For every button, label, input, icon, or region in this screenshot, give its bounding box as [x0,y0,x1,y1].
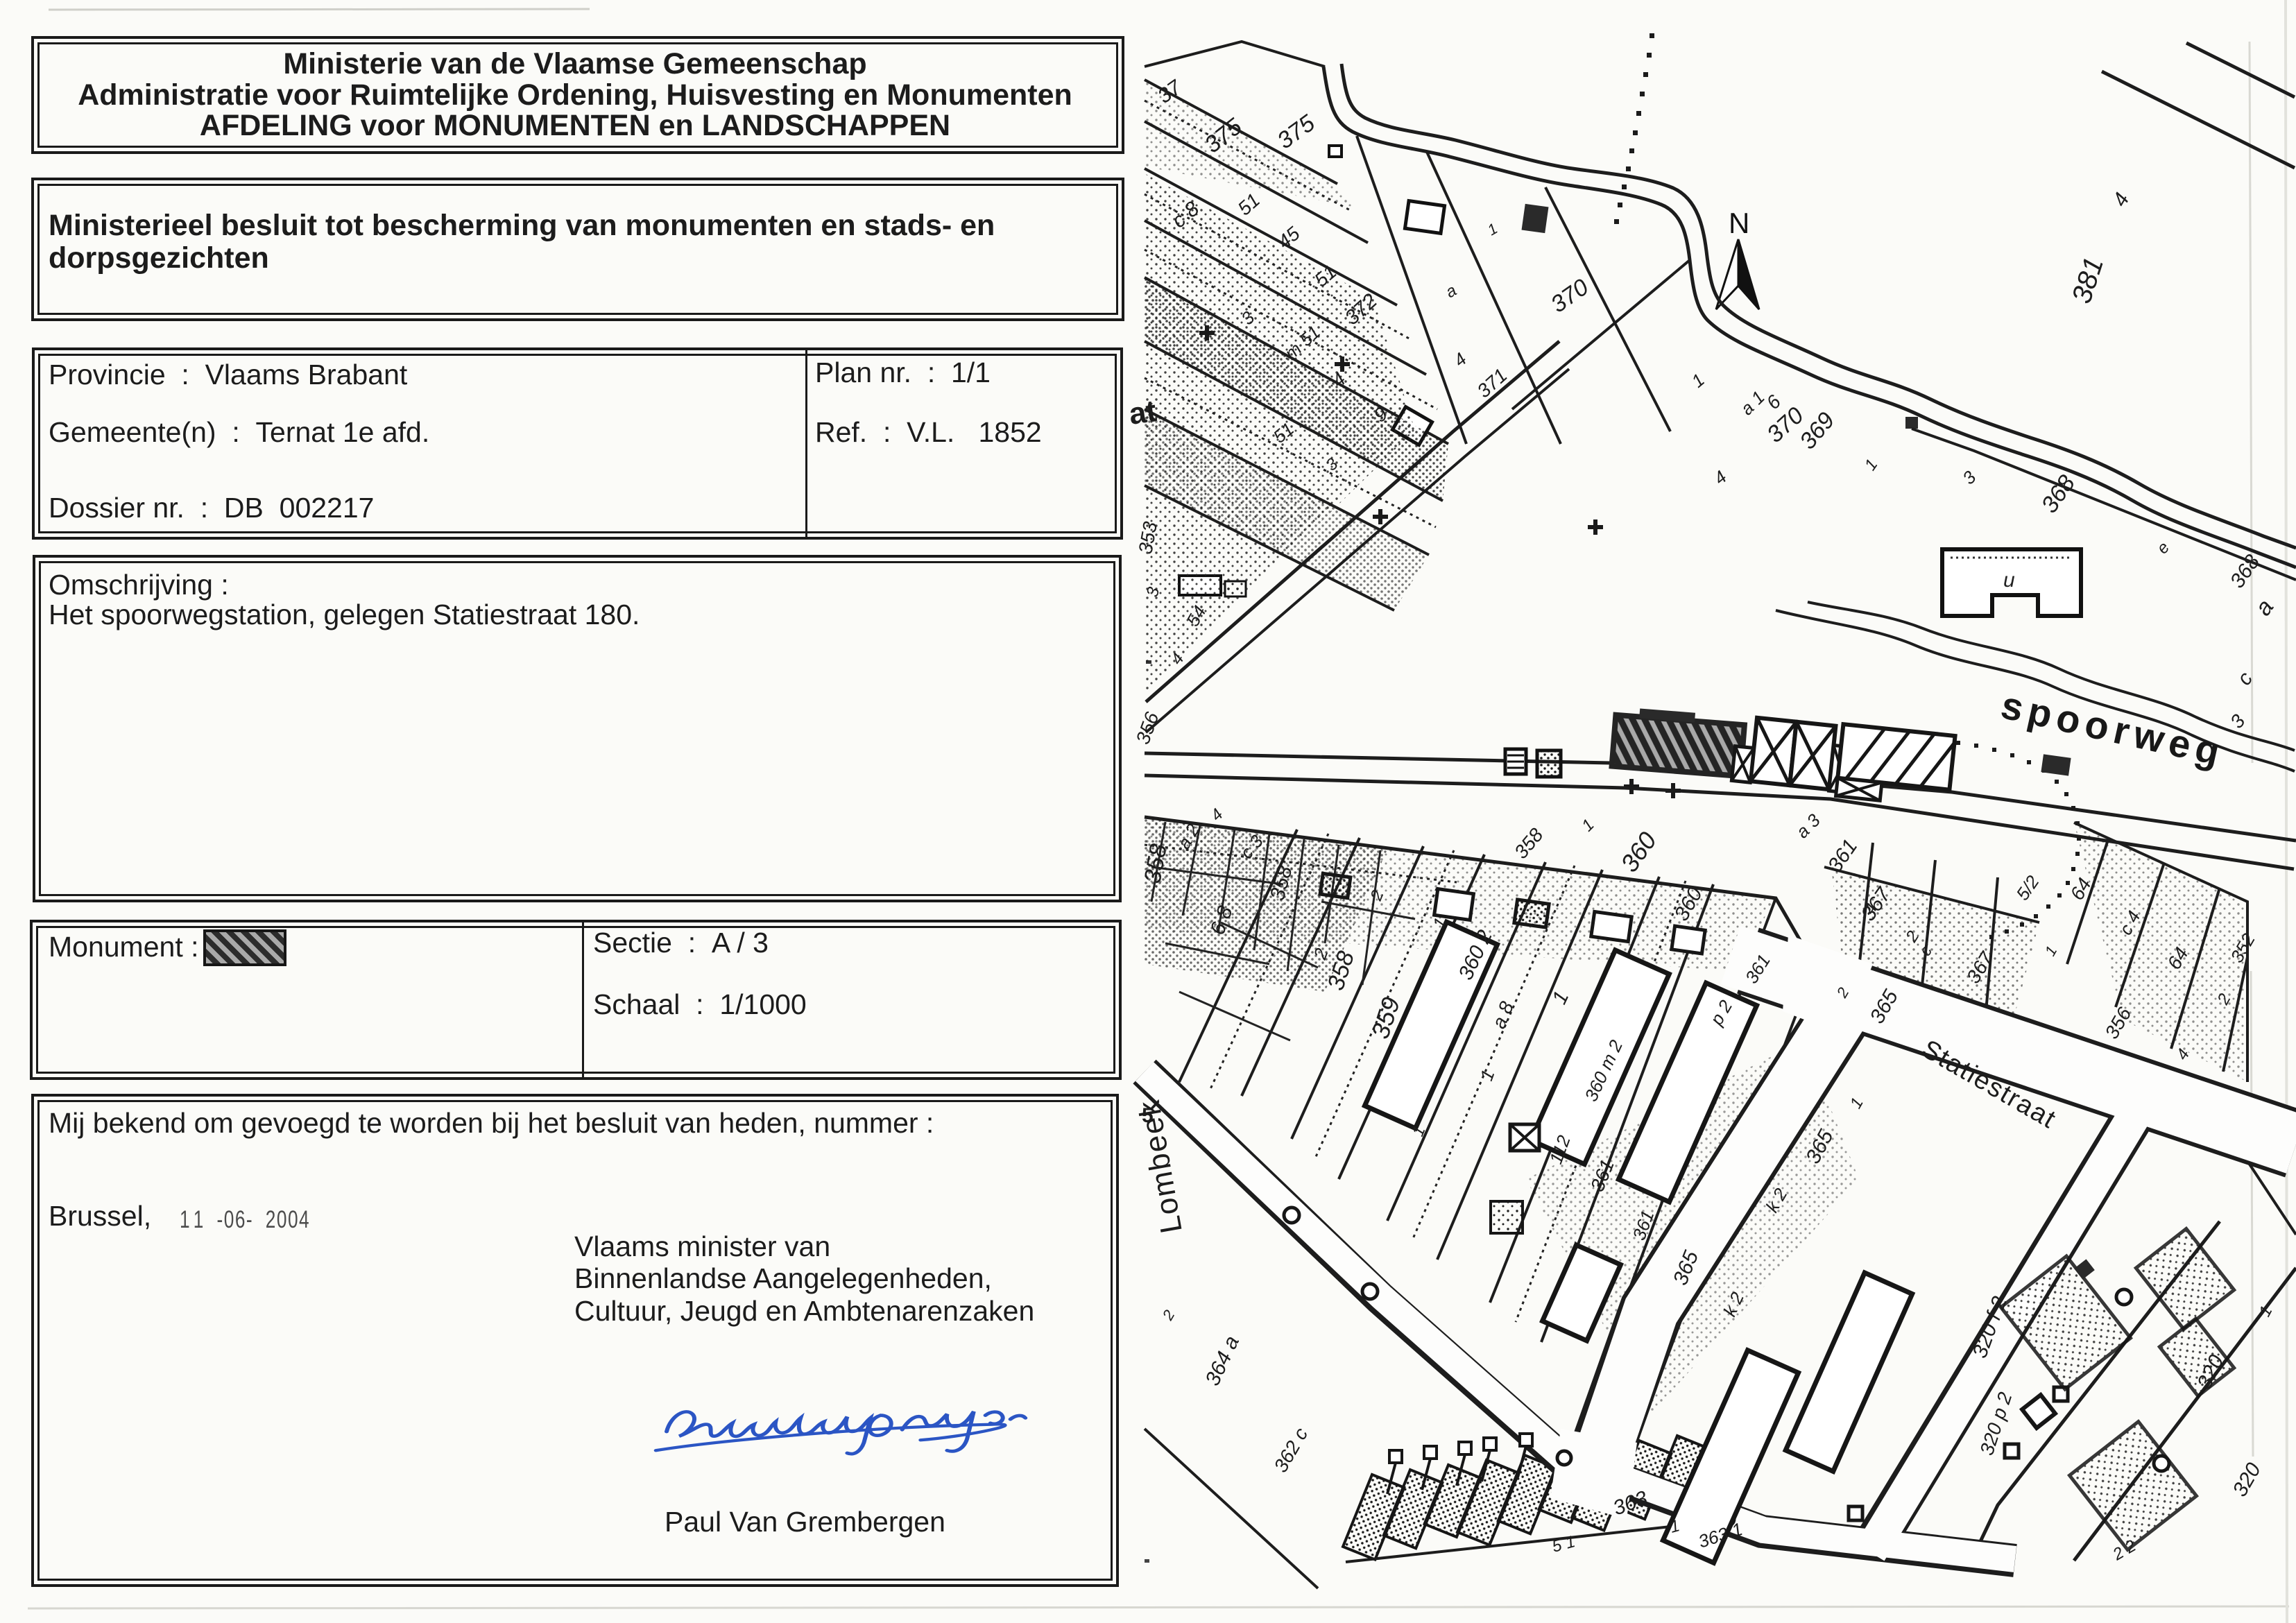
svg-text:1: 1 [1847,1094,1867,1112]
svg-text:375: 375 [1272,110,1319,154]
svg-text:a: a [1443,281,1460,302]
svg-text:u: u [2003,569,2015,592]
svg-text:N: N [1729,207,1749,239]
svg-text:381: 381 [2066,254,2109,307]
svg-text:361: 361 [1824,835,1862,877]
svg-text:c: c [2233,668,2258,689]
svg-text:320: 320 [2228,1459,2265,1500]
svg-text:4: 4 [1710,466,1731,488]
svg-text:a 3: a 3 [1792,809,1824,842]
svg-text:4: 4 [2108,189,2134,211]
svg-text:51: 51 [1233,189,1264,220]
svg-text:364 a: 364 a [1201,1332,1244,1389]
svg-text:1: 1 [1475,1067,1498,1083]
svg-text:e: e [2153,538,2173,558]
svg-text:370: 370 [1546,274,1593,318]
svg-text:5/2: 5/2 [2012,871,2044,904]
svg-text:1: 1 [1578,816,1598,836]
svg-text:1: 1 [1861,456,1882,474]
svg-text:1: 1 [1548,988,1573,1008]
svg-text:371: 371 [1473,364,1511,402]
svg-text:a 8: a 8 [1488,998,1518,1031]
svg-text:spoorweg: spoorweg [1997,682,2229,775]
svg-text:4: 4 [1207,805,1227,825]
svg-text:368: 368 [2226,551,2265,592]
svg-text:1: 1 [2041,943,2061,959]
svg-text:3: 3 [2226,710,2250,732]
svg-text:3: 3 [1958,466,1980,488]
svg-text:2: 2 [1158,1307,1178,1323]
svg-text:1: 1 [1688,369,1708,391]
svg-text:5 1: 5 1 [1550,1532,1577,1556]
svg-text:356: 356 [1132,709,1163,747]
svg-text:4: 4 [1450,348,1471,370]
svg-text:a 1: a 1 [1736,386,1769,419]
svg-text:358: 358 [1510,824,1548,863]
svg-text:a: a [2250,594,2279,620]
svg-text:360: 360 [1615,827,1662,877]
svg-text:1: 1 [1484,220,1500,239]
svg-text:362 c: 362 c [1269,1424,1312,1476]
